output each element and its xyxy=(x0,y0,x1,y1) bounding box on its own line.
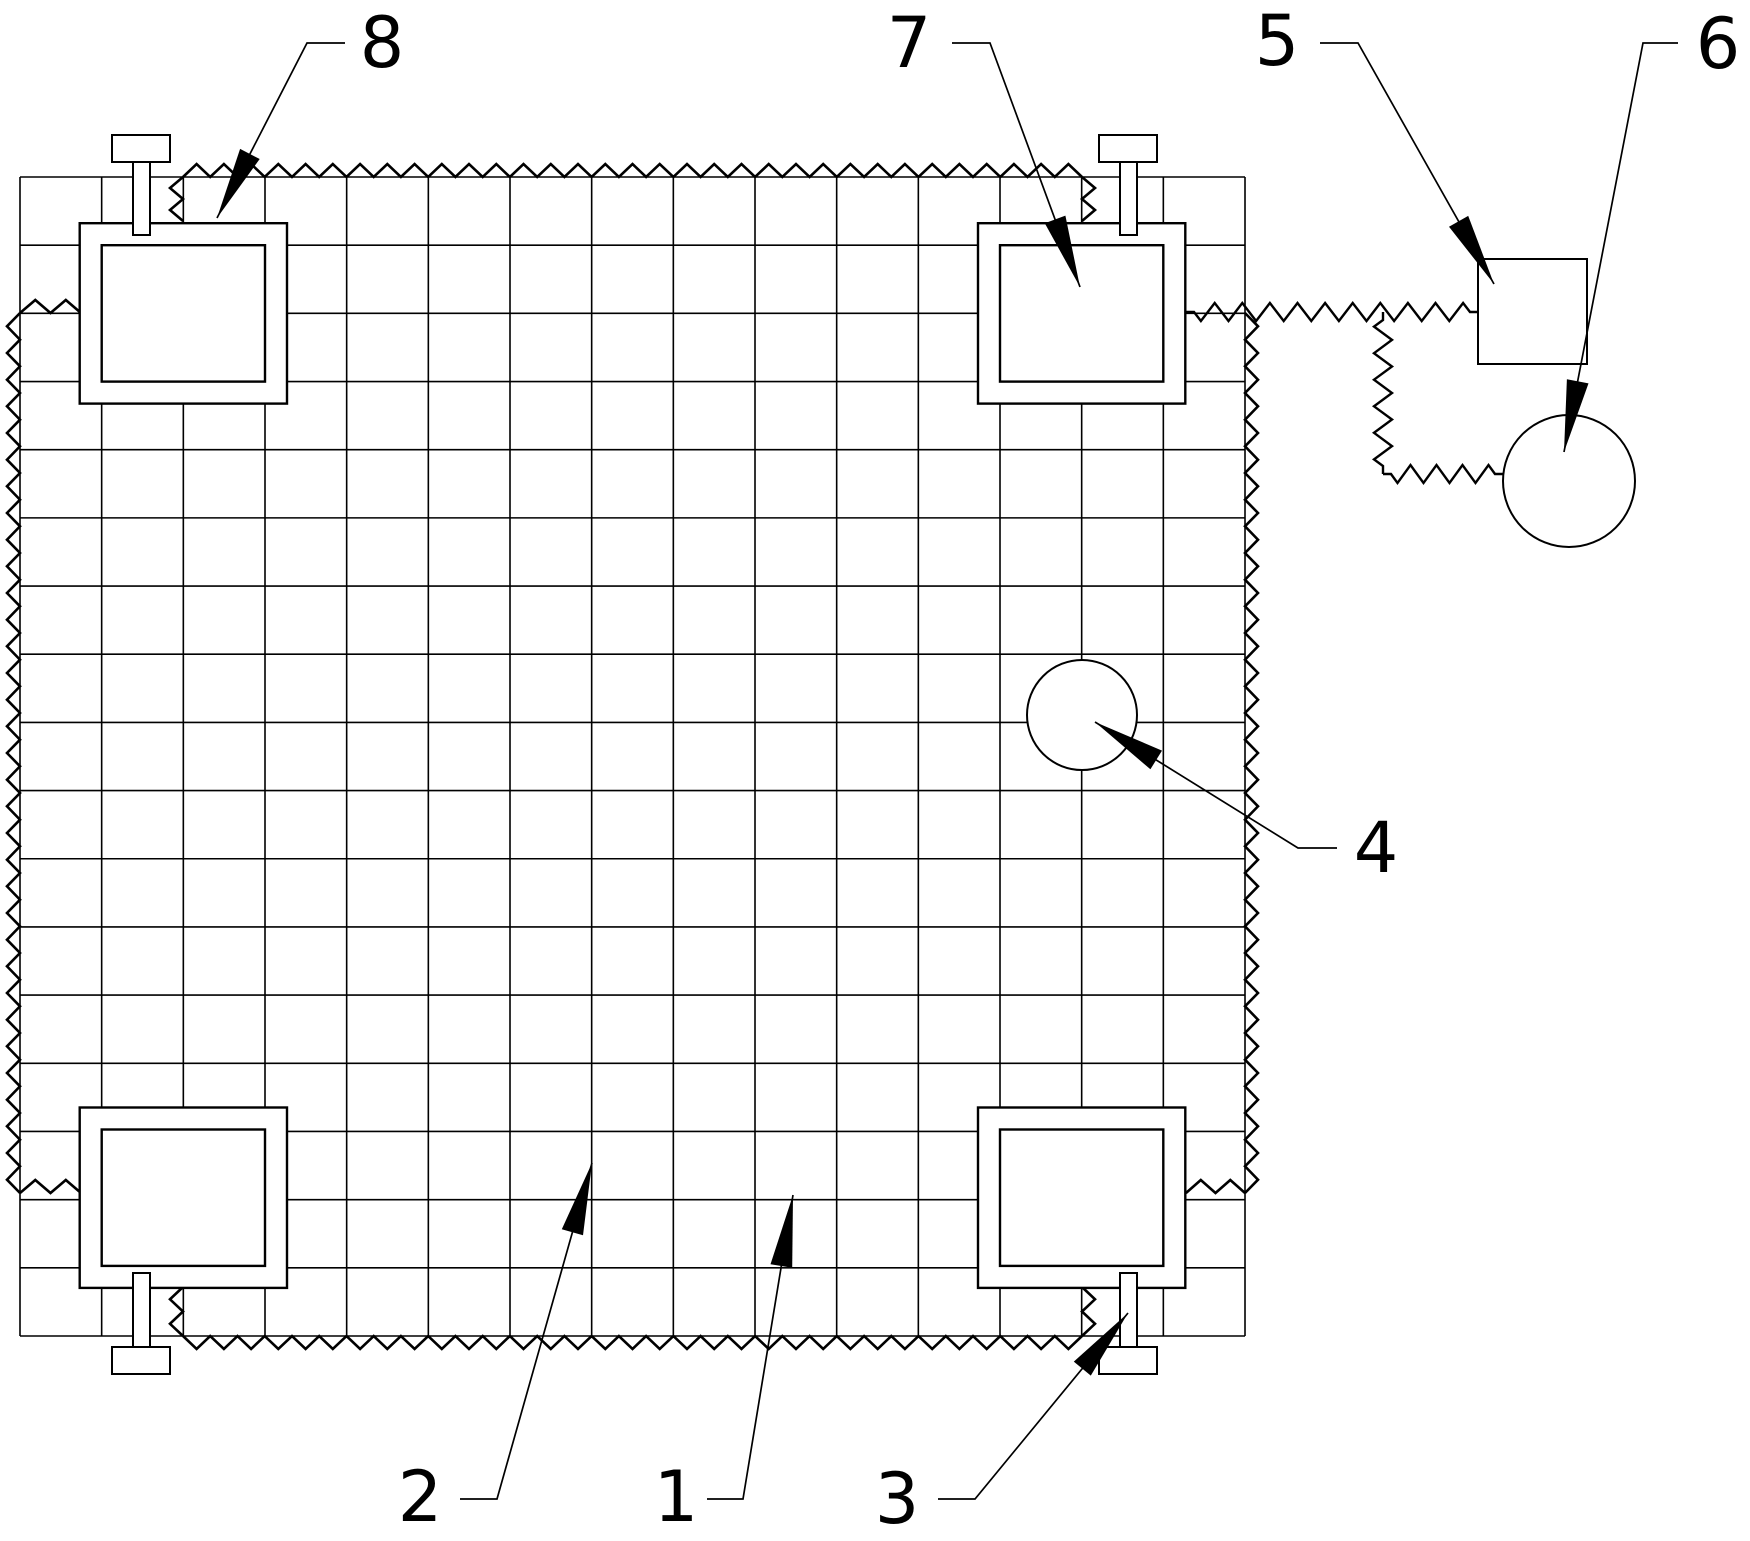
anchor-tie-zigzag-0 xyxy=(1186,303,1478,321)
leader-arrowhead-1 xyxy=(771,1195,794,1268)
mesh-edge-zigzag-6 xyxy=(170,1287,183,1336)
t-bolt-stem-1 xyxy=(1120,162,1137,235)
t-bolt-stem-2 xyxy=(133,1273,150,1347)
mesh-edge-zigzag-1 xyxy=(170,177,183,221)
corner-clamp-inner-0 xyxy=(102,245,265,381)
label-4: 4 xyxy=(1354,807,1399,889)
mesh-edge-zigzag-3 xyxy=(20,300,81,313)
anchor-plate-square-5 xyxy=(1478,259,1587,364)
corner-clamp-inner-2 xyxy=(102,1130,265,1266)
mesh-edge-zigzag-0 xyxy=(183,164,1082,177)
leader-line-8 xyxy=(217,43,345,218)
label-8: 8 xyxy=(360,2,405,84)
figure-svg: 12345678 xyxy=(0,0,1750,1541)
label-6: 6 xyxy=(1696,3,1741,85)
label-7: 7 xyxy=(887,2,932,84)
label-3: 3 xyxy=(875,1458,920,1540)
t-bolt-stem-0 xyxy=(133,162,150,235)
mesh-edge-zigzag-9 xyxy=(1186,1180,1245,1193)
leader-arrowhead-8 xyxy=(217,149,260,218)
mesh-edge-zigzag-2 xyxy=(1082,177,1095,221)
leader-arrowhead-5 xyxy=(1449,216,1494,284)
t-bolt-cap-0 xyxy=(112,135,170,162)
mesh-edge-zigzag-7 xyxy=(183,1336,1082,1349)
t-bolt-cap-1 xyxy=(1099,135,1157,162)
anchor-tie-zigzag-2 xyxy=(1383,465,1503,483)
t-bolt-cap-2 xyxy=(112,1347,170,1374)
anchor-tie-zigzag-1 xyxy=(1374,312,1392,474)
corner-clamp-inner-1 xyxy=(1000,245,1163,381)
mesh-edge-zigzag-10 xyxy=(1245,313,1258,1193)
patent-figure-page: 12345678 xyxy=(0,0,1750,1541)
corner-clamp-inner-3 xyxy=(1000,1130,1163,1266)
label-5: 5 xyxy=(1255,0,1300,82)
mesh-edge-zigzag-4 xyxy=(7,313,20,1193)
inner-circle-4 xyxy=(1027,660,1137,770)
label-1: 1 xyxy=(654,1456,699,1538)
mesh-edge-zigzag-5 xyxy=(20,1180,81,1193)
t-bolt-stem-3 xyxy=(1120,1273,1137,1347)
label-2: 2 xyxy=(398,1456,443,1538)
mesh-edge-zigzag-8 xyxy=(1082,1287,1095,1336)
t-bolt-cap-3 xyxy=(1099,1347,1157,1374)
